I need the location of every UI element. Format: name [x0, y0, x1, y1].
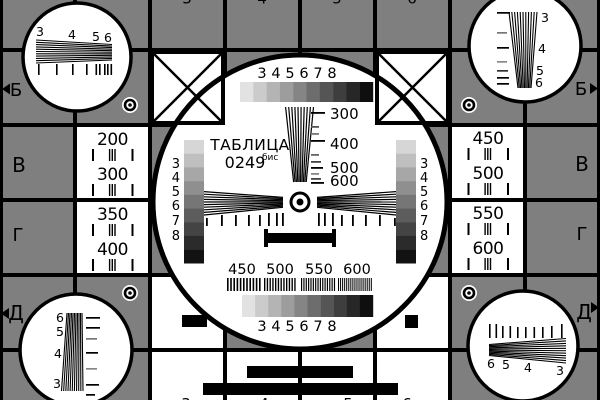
cell-label-500: 500 [473, 164, 504, 184]
center-tick [248, 215, 250, 226]
burst-line [334, 278, 335, 291]
strip-label-right: 7 [420, 214, 428, 229]
gray-step-bottom [281, 295, 294, 317]
burst-line [317, 278, 318, 291]
row-letter-right-v: В [575, 152, 589, 176]
strip-label-right: 4 [420, 171, 428, 186]
gray-step-right-strip [396, 250, 416, 264]
strip-label-right: 6 [420, 199, 428, 214]
burst-line [315, 278, 316, 291]
gray-step-top [307, 82, 321, 102]
scale-dash [311, 173, 319, 175]
row-letter-right-d: Д [576, 300, 592, 324]
cell-tick-triple [487, 183, 488, 195]
reference-black-bar [266, 233, 334, 243]
gray-step-left-strip [184, 236, 204, 250]
title-suffix: бис [262, 153, 278, 163]
burst-line [359, 278, 360, 291]
burst-line [325, 278, 326, 291]
br-tick [534, 327, 536, 338]
strip-label-left: 5 [172, 185, 180, 200]
cell-tick-triple [112, 259, 113, 271]
row-letter-left-b: Б [10, 80, 22, 101]
gray-step-bottom [255, 295, 268, 317]
tl-tick [104, 64, 106, 75]
strip-label-right: 8 [420, 229, 428, 244]
center-tick [332, 213, 334, 226]
gray-step-left-strip [184, 222, 204, 236]
burst-line [338, 278, 339, 291]
burst-line [259, 278, 261, 291]
center-tick [276, 213, 278, 226]
burst-line [313, 278, 314, 291]
tl-wedge-line [36, 55, 112, 56]
gray-step-bottom [347, 295, 360, 317]
reference-black-bar-cap [332, 229, 336, 247]
grayscale-label-bottom: 5 [285, 319, 294, 335]
tr-wedge-label: 3 [541, 10, 549, 25]
burst-line [283, 278, 284, 291]
tr-dash [497, 32, 507, 34]
center-tick [379, 215, 381, 226]
grayscale-label-bottom: 7 [313, 319, 322, 335]
burst-line [292, 278, 293, 291]
center-scale-label: 600 [330, 172, 359, 190]
cell-tick-triple [484, 183, 485, 195]
burst-line [354, 278, 355, 291]
burst-line [363, 278, 364, 291]
gray-step-top [333, 82, 347, 102]
cell-tick-single [92, 259, 94, 271]
test-card-0249: 3456783456783456783456783004005006004505… [0, 0, 600, 400]
bottom-short-bar [247, 366, 353, 378]
cell-tick-single [132, 259, 134, 271]
gray-step-left-strip [184, 250, 204, 264]
burst-line [348, 278, 349, 291]
gray-step-right-strip [396, 195, 416, 209]
cell-tick-single [132, 224, 134, 236]
black-square-right-mark [405, 315, 418, 328]
cell-tick-triple [112, 224, 113, 236]
tl-tick [86, 64, 88, 75]
row-letter-right-b: Б [575, 79, 587, 100]
gray-step-bottom [321, 295, 334, 317]
cell-tick-triple [114, 149, 115, 161]
cell-tick-triple [114, 259, 115, 271]
bl-wedge-label: 3 [53, 376, 61, 391]
gray-step-bottom [294, 295, 307, 317]
gray-step-bottom [242, 295, 255, 317]
center-tick [352, 215, 354, 226]
tr-wedge-label: 4 [538, 41, 546, 56]
bl-wedge-label: 5 [56, 324, 64, 339]
bl-dash [86, 352, 98, 354]
cell-tick-triple [490, 148, 491, 160]
strip-label-left: 6 [172, 199, 180, 214]
grayscale-label-bottom: 3 [257, 319, 266, 335]
burst-line [308, 278, 309, 291]
grayscale-label-top: 3 [257, 66, 266, 82]
tr-dash [497, 12, 510, 14]
burst-line [327, 278, 328, 291]
gray-step-right-strip [396, 154, 416, 168]
center-tick [221, 215, 223, 226]
tr-dash [497, 61, 507, 63]
gray-step-top [360, 82, 374, 102]
bl-dash [86, 368, 97, 370]
burst-line [249, 278, 251, 291]
cell-tick-triple [109, 149, 110, 161]
gray-step-right-strip [396, 167, 416, 181]
center-tick [206, 218, 208, 226]
burst-line [272, 278, 273, 291]
center-tick [341, 215, 343, 226]
title-number: 0249 [225, 153, 266, 172]
tl-tick [99, 64, 101, 75]
strip-label-left: 4 [172, 171, 180, 186]
br-tick [510, 326, 512, 338]
bullseye-dot [128, 291, 132, 295]
tl-wedge-line [36, 52, 112, 53]
br-wedge-label: 5 [502, 357, 510, 372]
grayscale-label-top: 6 [299, 66, 308, 82]
vertical-wedge-line [301, 107, 302, 182]
tl-tick [56, 64, 58, 75]
cell-tick-triple [109, 184, 110, 196]
br-tick [561, 324, 563, 338]
gray-step-right-strip [396, 140, 416, 154]
br-tick [502, 326, 504, 338]
gray-step-left-strip [184, 195, 204, 209]
partial-digit-bottom: 3 [181, 395, 191, 400]
cell-tick-triple [114, 224, 115, 236]
gray-step-top [267, 82, 281, 102]
burst-line [369, 278, 370, 291]
cell-tick-triple [490, 223, 491, 235]
tr-dash [497, 70, 508, 72]
scale-dash [311, 126, 319, 128]
burst-line [278, 278, 279, 291]
burst-line [356, 278, 357, 291]
tl-tick [38, 64, 40, 75]
tl-wedge-label: 3 [36, 24, 44, 39]
cell-tick-triple [114, 184, 115, 196]
burst-line [246, 278, 248, 291]
cell-tick-triple [487, 223, 488, 235]
scale-dash [311, 178, 321, 180]
black-bar-left-mark [182, 315, 207, 327]
cell-tick-single [92, 184, 94, 196]
cell-tick-single [92, 149, 94, 161]
cell-tick-single [507, 223, 509, 235]
gray-step-top [320, 82, 334, 102]
gray-step-bottom [308, 295, 321, 317]
cell-tick-triple [112, 149, 113, 161]
center-tick [259, 215, 261, 226]
burst-label: 550 [305, 262, 333, 278]
center-tick [365, 215, 367, 226]
partial-digit-top: 4 [257, 0, 267, 8]
burst-line [346, 278, 347, 291]
tl-wedge-label: 4 [68, 27, 76, 42]
cell-tick-single [92, 224, 94, 236]
br-wedge-line [489, 350, 566, 351]
grayscale-label-top: 7 [313, 66, 322, 82]
cell-tick-single [468, 223, 470, 235]
corner-circle-top-left [23, 3, 131, 111]
burst-line [340, 278, 341, 291]
title-text: ТАБЛИЦА [209, 136, 289, 154]
row-letter-left-g: Г [13, 225, 24, 246]
tl-tick [72, 64, 74, 75]
cell-tick-triple [487, 148, 488, 160]
center-scale-label: 400 [330, 135, 359, 153]
gray-step-bottom [360, 295, 373, 317]
cell-label-400: 400 [97, 240, 128, 260]
scale-dash [311, 161, 321, 163]
burst-line [267, 278, 268, 291]
bl-wedge-label: 4 [54, 346, 62, 361]
center-tick [394, 218, 396, 226]
test-card-screenshot: 3456783456783456783456783004005006004505… [0, 0, 600, 400]
burst-line [332, 278, 333, 291]
burst-line [227, 278, 229, 291]
gray-step-bottom [268, 295, 281, 317]
burst-line [303, 278, 304, 291]
center-scale-label: 300 [330, 105, 359, 123]
br-wedge-label: 3 [556, 363, 564, 378]
grayscale-label-top: 5 [285, 66, 294, 82]
row-letter-left-v: В [12, 153, 26, 177]
strip-label-right: 5 [420, 185, 428, 200]
partial-digit-top: 3 [182, 0, 192, 8]
x-square-left [150, 50, 225, 125]
bottom-long-bar [203, 383, 398, 395]
burst-line [352, 278, 353, 291]
cell-tick-single [468, 183, 470, 195]
cell-tick-triple [490, 258, 491, 270]
grayscale-label-bottom: 6 [299, 319, 308, 335]
strip-label-left: 7 [172, 214, 180, 229]
strip-label-left: 3 [172, 157, 180, 172]
cell-tick-single [507, 183, 509, 195]
burst-line [243, 278, 245, 291]
burst-label: 600 [343, 262, 371, 278]
cell-tick-triple [484, 223, 485, 235]
row-letter-left-d: Д [8, 301, 24, 325]
center-tick [318, 213, 320, 226]
br-tick [496, 324, 498, 338]
burst-line [342, 278, 343, 291]
br-tick [542, 327, 544, 338]
gray-step-right-strip [396, 236, 416, 250]
burst-line [264, 278, 265, 291]
br-wedge-line [489, 348, 566, 349]
partial-digit-bottom: 4 [259, 395, 269, 400]
gray-step-top [253, 82, 266, 102]
br-wedge-label: 6 [487, 356, 495, 371]
br-tick [517, 327, 519, 338]
tr-dash [497, 83, 509, 85]
cell-label-300: 300 [97, 165, 128, 185]
burst-line [253, 278, 255, 291]
burst-line [361, 278, 362, 291]
scale-dash [311, 154, 319, 156]
burst-label: 450 [228, 262, 256, 278]
burst-line [367, 278, 368, 291]
gray-step-left-strip [184, 181, 204, 195]
bullseye-dot [467, 291, 471, 295]
cell-tick-triple [487, 258, 488, 270]
tr-dash [497, 47, 509, 49]
burst-line [275, 278, 276, 291]
burst-line [320, 278, 321, 291]
gray-step-top [293, 82, 307, 102]
tr-dash [497, 77, 509, 79]
cell-tick-single [507, 148, 509, 160]
gray-step-bottom [334, 295, 347, 317]
cell-label-550: 550 [473, 204, 504, 224]
burst-line [322, 278, 323, 291]
strip-label-right: 3 [420, 157, 428, 172]
center-tick [282, 213, 284, 226]
cell-label-200: 200 [97, 130, 128, 150]
scale-dash [311, 112, 325, 114]
burst-line [237, 278, 239, 291]
corner-circle-bottom-left [20, 294, 132, 400]
gray-step-left-strip [184, 154, 204, 168]
burst-line [281, 278, 282, 291]
tl-tick [96, 64, 98, 75]
gray-step-top [280, 82, 294, 102]
cell-tick-triple [484, 148, 485, 160]
bullseye-dot [467, 103, 471, 107]
gray-step-right-strip [396, 209, 416, 223]
center-tick [268, 213, 270, 226]
burst-line [301, 278, 302, 291]
cell-tick-triple [490, 183, 491, 195]
burst-line [306, 278, 307, 291]
cell-label-600: 600 [473, 239, 504, 259]
bl-dash [86, 317, 100, 319]
burst-line [329, 278, 330, 291]
bl-dash [86, 394, 95, 396]
tl-wedge-label: 6 [104, 30, 112, 45]
partial-digit-bottom: 5 [343, 395, 353, 400]
gray-step-left-strip [184, 167, 204, 181]
tl-wedge-label: 5 [92, 29, 100, 44]
cell-tick-triple [112, 184, 113, 196]
br-tick [525, 327, 527, 338]
tl-tick [111, 64, 113, 75]
burst-line [289, 278, 290, 291]
gray-step-left-strip [184, 209, 204, 223]
cell-tick-triple [109, 224, 110, 236]
br-wedge-label: 4 [524, 360, 532, 375]
burst-line [286, 278, 287, 291]
tr-wedge-label: 6 [535, 75, 543, 90]
scale-dash [311, 133, 319, 135]
burst-line [256, 278, 258, 291]
grayscale-label-top: 8 [327, 66, 336, 82]
burst-line [240, 278, 242, 291]
burst-line [294, 278, 295, 291]
partial-digit-bottom: 6 [402, 395, 412, 400]
grayscale-label-bottom: 8 [327, 319, 336, 335]
bl-dash [86, 327, 100, 329]
br-tick [551, 326, 553, 338]
grayscale-label-bottom: 4 [271, 319, 280, 335]
cell-tick-single [507, 258, 509, 270]
bl-dash [86, 384, 99, 386]
gray-step-top [346, 82, 360, 102]
gray-step-left-strip [184, 140, 204, 154]
burst-line [344, 278, 345, 291]
scale-dash [311, 182, 324, 184]
x-square-right [375, 50, 450, 125]
partial-digit-top: 5 [332, 0, 342, 8]
partial-digit-top: 6 [407, 0, 417, 8]
reference-black-bar-cap [264, 229, 268, 247]
grayscale-label-top: 4 [271, 66, 280, 82]
scale-dash [311, 140, 325, 142]
burst-line [371, 278, 372, 291]
center-target-dot [297, 199, 304, 206]
gray-step-right-strip [396, 222, 416, 236]
gray-step-right-strip [396, 181, 416, 195]
cell-label-350: 350 [97, 205, 128, 225]
burst-line [310, 278, 311, 291]
burst-line [350, 278, 351, 291]
center-tick [235, 215, 237, 226]
cell-tick-single [132, 149, 134, 161]
burst-line [230, 278, 232, 291]
cell-tick-single [468, 148, 470, 160]
row-letter-right-g: Г [577, 224, 588, 245]
center-tick [324, 213, 326, 226]
gray-step-top [240, 82, 254, 102]
tl-tick [107, 64, 109, 75]
br-tick [489, 324, 491, 338]
cell-tick-triple [109, 259, 110, 271]
strip-label-left: 8 [172, 229, 180, 244]
burst-label: 500 [266, 262, 294, 278]
cell-tick-triple [484, 258, 485, 270]
cell-tick-single [132, 184, 134, 196]
burst-line [233, 278, 235, 291]
cell-tick-single [468, 258, 470, 270]
burst-line [365, 278, 366, 291]
burst-line [270, 278, 271, 291]
bl-wedge-label: 6 [56, 310, 64, 325]
cell-label-450: 450 [473, 129, 504, 149]
bl-dash [86, 338, 97, 340]
scale-dash [311, 167, 323, 169]
bullseye-dot [128, 103, 132, 107]
